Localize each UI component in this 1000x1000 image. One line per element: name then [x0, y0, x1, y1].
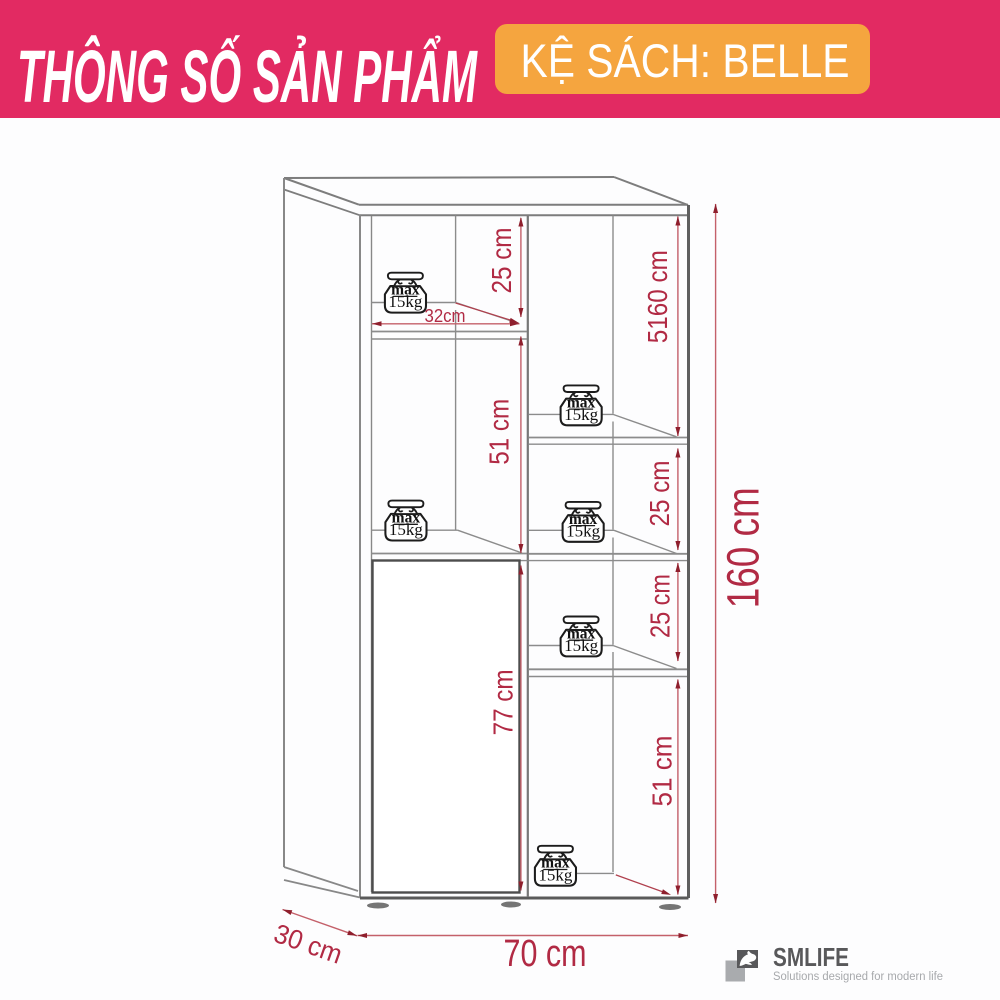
svg-text:Solutions designed for modern: Solutions designed for modern life — [773, 971, 943, 983]
svg-text:5160 cm: 5160 cm — [642, 250, 673, 343]
svg-text:25 cm: 25 cm — [644, 461, 675, 527]
svg-text:51 cm: 51 cm — [484, 399, 515, 465]
svg-text:THÔNG SỐ SẢN PHẨM: THÔNG SỐ SẢN PHẨM — [17, 35, 478, 118]
svg-text:51 cm: 51 cm — [647, 736, 678, 807]
svg-text:70 cm: 70 cm — [504, 933, 587, 975]
svg-text:25 cm: 25 cm — [486, 228, 517, 294]
svg-text:77 cm: 77 cm — [488, 669, 519, 735]
svg-text:160 cm: 160 cm — [717, 487, 768, 608]
svg-text:KỆ SÁCH: BELLE: KỆ SÁCH: BELLE — [521, 35, 850, 88]
svg-text:25 cm: 25 cm — [645, 574, 676, 638]
svg-text:32cm: 32cm — [425, 305, 466, 326]
svg-text:SMLIFE: SMLIFE — [773, 942, 849, 972]
